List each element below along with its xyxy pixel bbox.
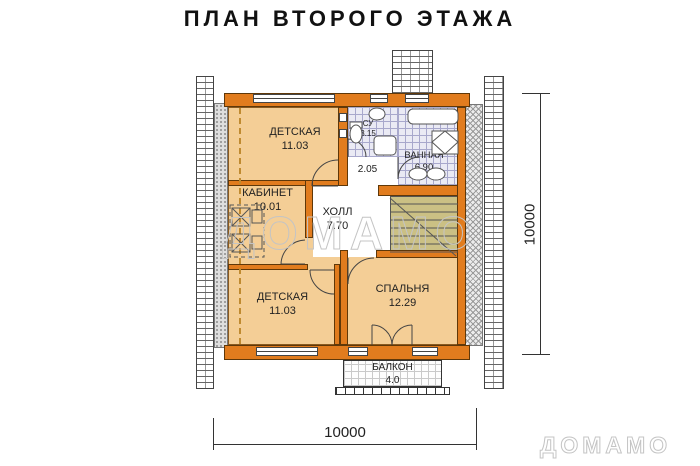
dim-right-value: 10000 [522,190,539,260]
dim-bottom-line [213,444,476,445]
label-corridor: 2.05 [345,163,390,176]
window-top-nursery [253,94,335,103]
label-nursery-top: ДЕТСКАЯ 11.03 [235,125,355,154]
window-top-bathroom [405,94,429,103]
right-roof-slope [464,104,483,346]
staircase [390,196,458,258]
label-hall: ХОЛЛ 7.70 [305,205,370,234]
label-balcony: БАЛКОН 4.0 [343,361,442,387]
dim-bottom-value: 10000 [300,424,390,441]
window-top-wc [370,94,388,103]
right-gable-wall [484,76,504,389]
dim-right-tick-bottom [522,354,550,355]
watermark-corner: ДОМАМО [540,432,671,459]
balcony-railing [335,387,450,395]
bedroom-left-wall [340,250,348,345]
left-gable-wall [196,76,214,389]
label-bedroom: СПАЛЬНЯ 12.29 [350,282,455,311]
floor-plan-page: { "title": "ПЛАН ВТОРОГО ЭТАЖА", "waterm… [0,0,700,466]
page-title: ПЛАН ВТОРОГО ЭТАЖА [0,6,700,32]
stairs-top-wall [378,185,458,196]
dim-bottom-tick-left [213,418,214,450]
label-bathroom: ВАННАЯ 6.90 [396,150,452,175]
window-bedroom-balcony-left [348,347,368,356]
label-study: КАБИНЕТ 10.01 [225,186,310,215]
chimney [392,50,433,95]
label-wc: СУ 3.15 [348,119,388,140]
label-nursery-bottom: ДЕТСКАЯ 11.03 [230,290,335,319]
dim-right-tick-top [522,93,550,94]
dim-right-line [540,93,541,355]
bedroom-top-wall [376,250,458,258]
window-bedroom-balcony-right [412,347,438,356]
window-bottom-nursery [256,347,318,356]
dim-bottom-tick-right [476,408,477,450]
right-interior-wall [457,107,466,345]
wall-niche-upper [339,113,347,122]
left-roof-slope [214,103,228,348]
